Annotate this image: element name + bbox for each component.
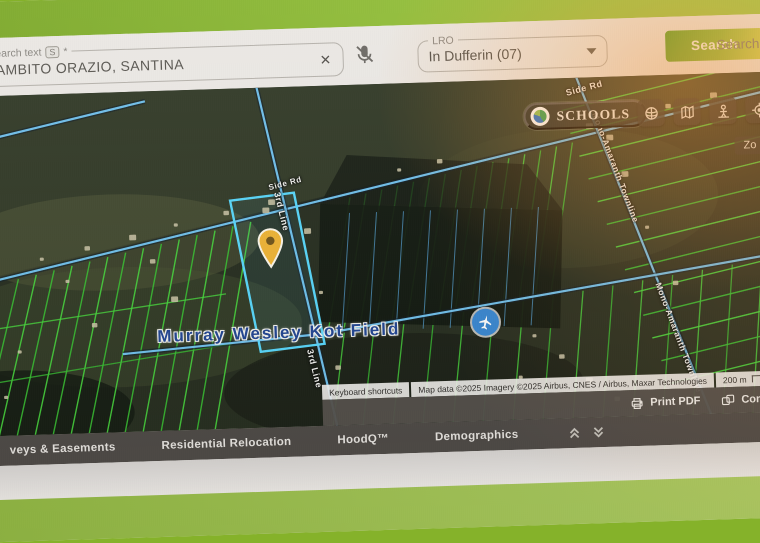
map-container: Side Rd Side Rd 3rd Line 3rd Line Mono-A… bbox=[0, 71, 760, 437]
collapse-down-icon[interactable] bbox=[592, 426, 604, 438]
app-screen: Search text S * × LRO In Dufferin (07) S… bbox=[0, 0, 760, 543]
shortcut-badge: S bbox=[45, 45, 59, 57]
zoom-hint-badge: Zo bbox=[734, 136, 760, 155]
schools-button-label: SCHOOLS bbox=[556, 106, 630, 124]
panel-collapse-controls bbox=[568, 426, 604, 439]
required-marker: * bbox=[63, 45, 67, 57]
lro-field[interactable]: LRO In Dufferin (07) bbox=[417, 29, 608, 72]
tab-residential-relocation[interactable]: Residential Relocation bbox=[161, 436, 291, 452]
map-scale-label: 200 m bbox=[723, 374, 747, 385]
print-pdf-button[interactable]: Print PDF bbox=[629, 394, 701, 411]
airplane-icon bbox=[475, 312, 495, 332]
mic-off-icon[interactable] bbox=[353, 43, 376, 69]
dropdown-caret-icon[interactable] bbox=[586, 48, 596, 54]
secondary-search-label[interactable]: Search bbox=[716, 36, 759, 52]
print-pdf-label: Print PDF bbox=[650, 395, 700, 409]
tab-hoodq[interactable]: HoodQ™ bbox=[337, 433, 389, 447]
search-text-label-text: Search text bbox=[0, 46, 42, 60]
crosshair-my-location-icon[interactable] bbox=[745, 96, 760, 124]
collapse-up-icon[interactable] bbox=[568, 427, 580, 439]
basemap-layers-icon[interactable] bbox=[637, 99, 665, 127]
printer-icon bbox=[629, 395, 644, 410]
tab-demographics[interactable]: Demographics bbox=[435, 429, 519, 444]
schools-button[interactable]: SCHOOLS bbox=[523, 100, 646, 131]
search-text-field: Search text S * × bbox=[0, 37, 344, 88]
compare-button[interactable]: Comp bbox=[720, 391, 760, 408]
property-pin-icon[interactable] bbox=[255, 227, 286, 270]
lro-label: LRO bbox=[432, 34, 454, 47]
tab-surveys-easements[interactable]: veys & Easements bbox=[10, 441, 116, 456]
clear-icon[interactable]: × bbox=[318, 50, 333, 68]
map-scale-bar bbox=[751, 374, 760, 382]
compare-label: Comp bbox=[741, 393, 760, 406]
map-type-icon[interactable] bbox=[673, 98, 701, 126]
lro-selected-value: In Dufferin (07) bbox=[428, 45, 522, 64]
map-scale: 200 m bbox=[716, 370, 760, 388]
schools-icon bbox=[530, 107, 550, 127]
compare-icon bbox=[720, 392, 735, 407]
pegman-street-view-icon[interactable] bbox=[709, 97, 737, 125]
